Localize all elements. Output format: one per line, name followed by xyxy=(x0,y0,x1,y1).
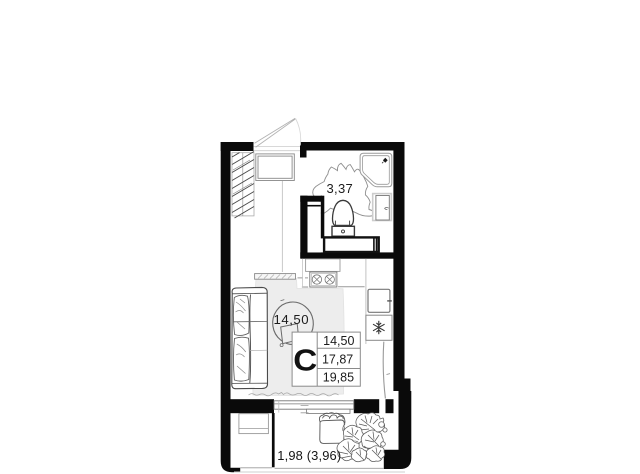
svg-text:3,37: 3,37 xyxy=(326,181,353,196)
svg-text:14,50: 14,50 xyxy=(323,334,354,348)
svg-text:19,85: 19,85 xyxy=(323,371,354,385)
svg-text:1,98 (3,96): 1,98 (3,96) xyxy=(277,448,341,463)
svg-text:17,87: 17,87 xyxy=(322,353,353,367)
svg-text:С: С xyxy=(293,343,317,378)
svg-text:14,50: 14,50 xyxy=(274,312,310,327)
